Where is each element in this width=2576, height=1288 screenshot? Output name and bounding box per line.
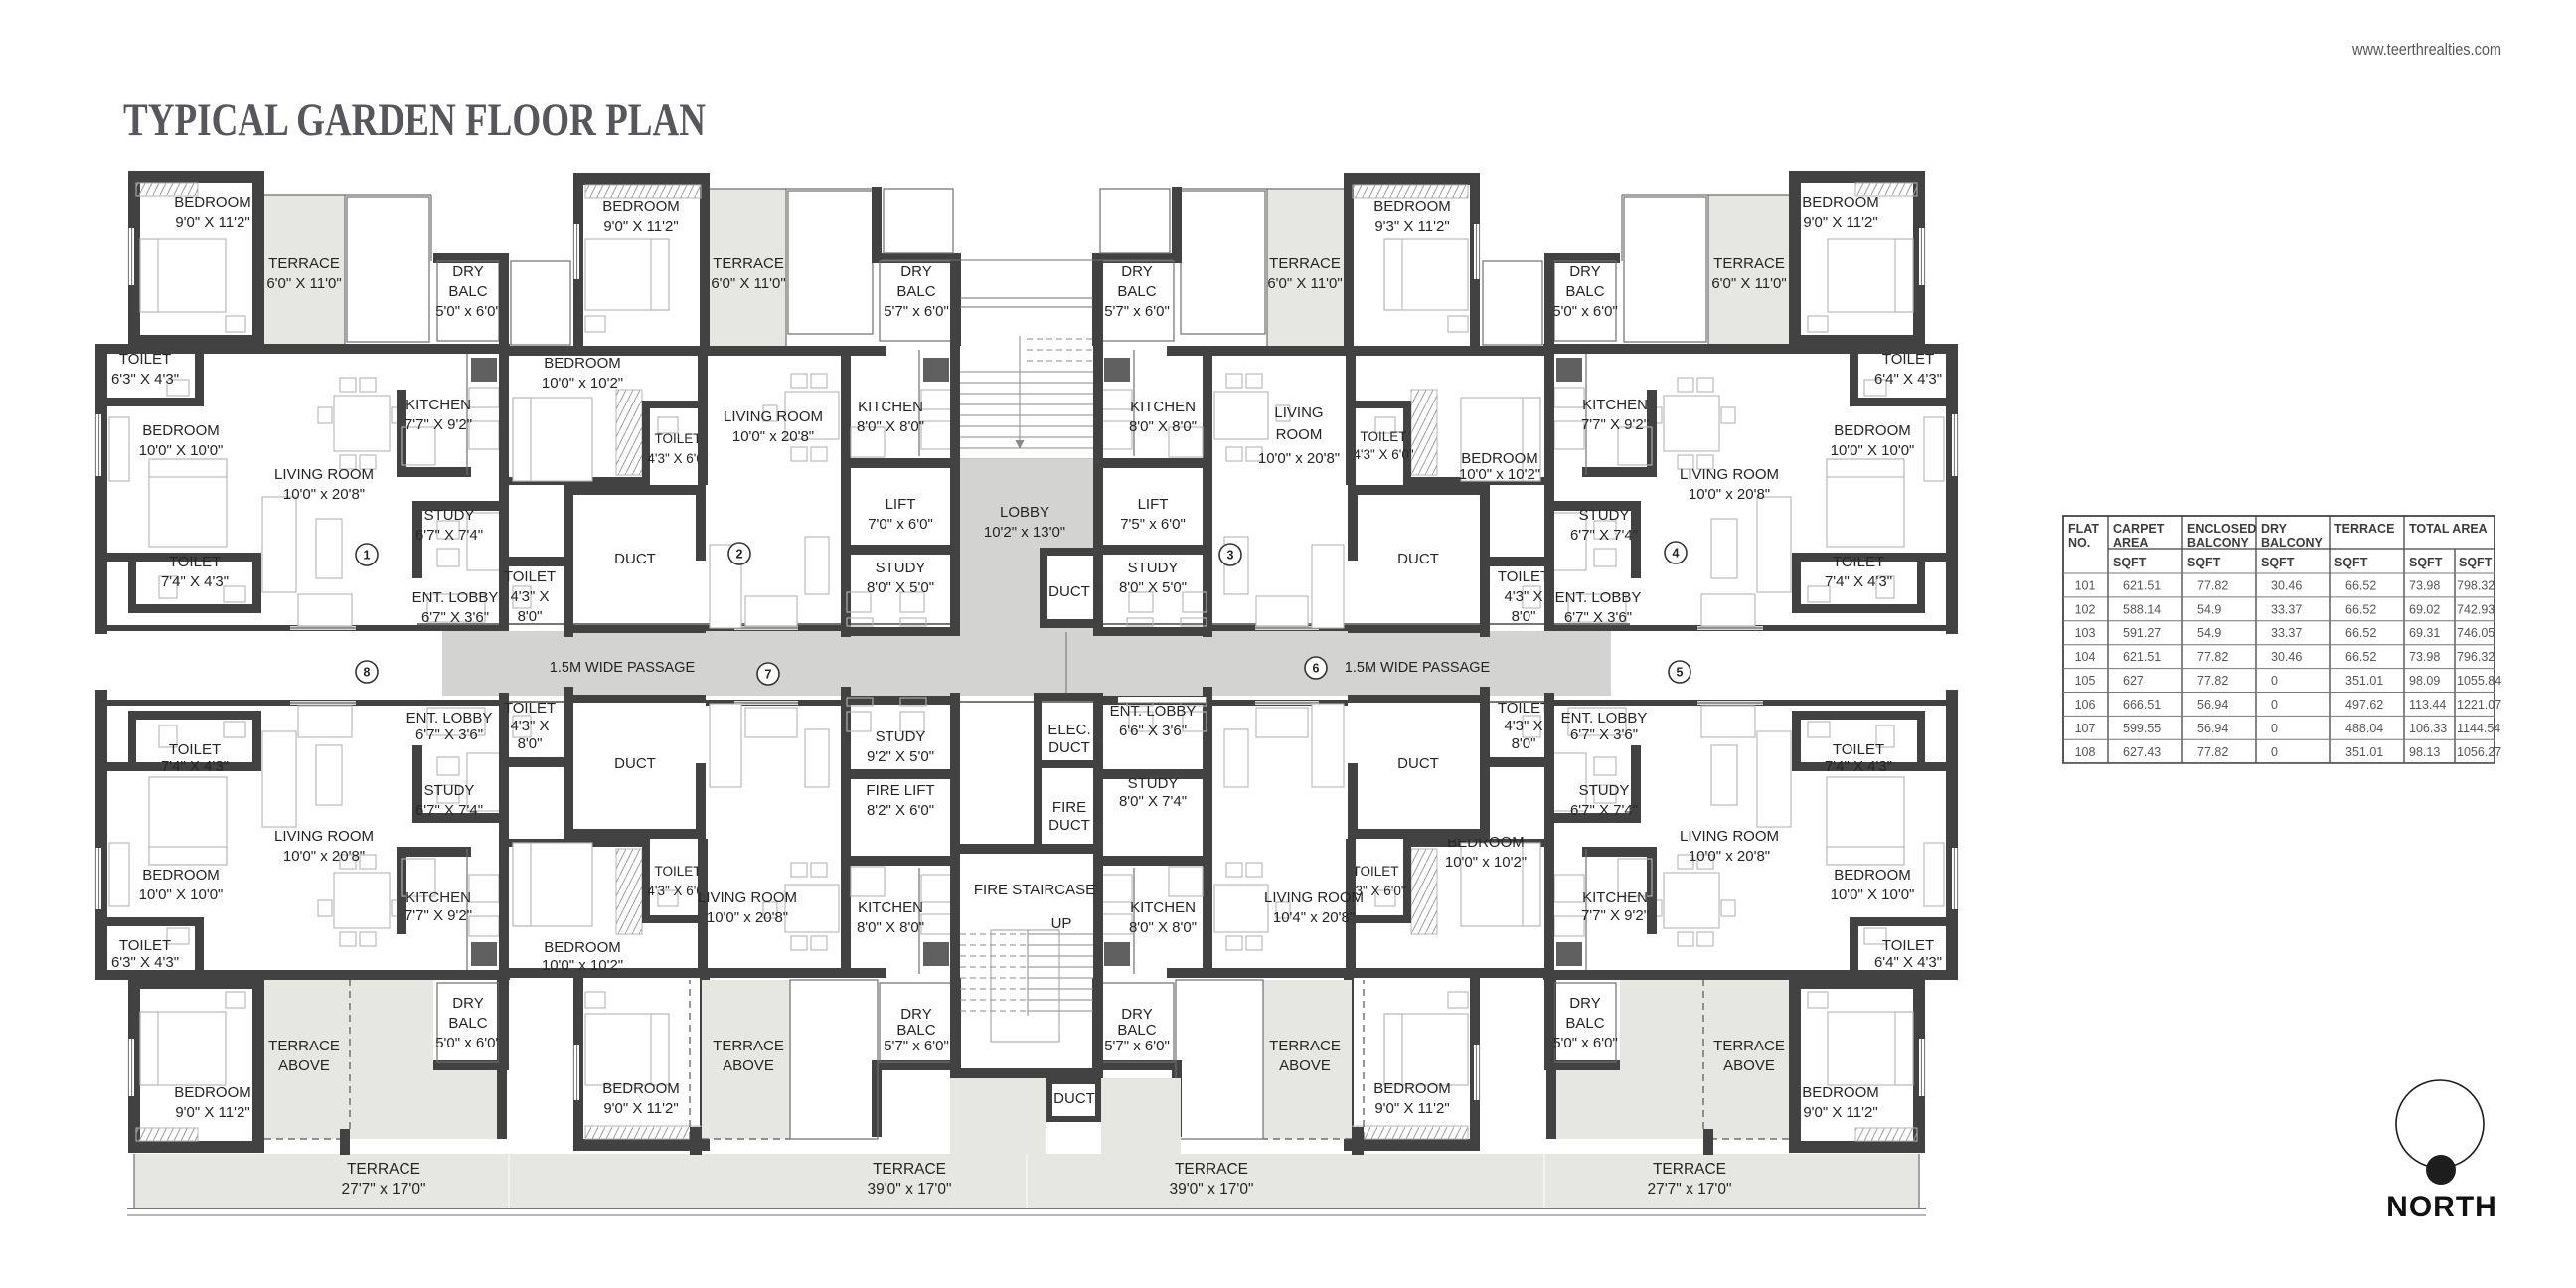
svg-text:FIRE STAIRCASE: FIRE STAIRCASE xyxy=(974,882,1095,898)
svg-text:591.27: 591.27 xyxy=(2123,626,2161,640)
svg-text:TOILET: TOILET xyxy=(169,554,221,570)
svg-text:6'4" X 4'3": 6'4" X 4'3" xyxy=(1874,954,1942,971)
svg-text:BALC: BALC xyxy=(448,1015,487,1032)
svg-text:NO.: NO. xyxy=(2068,536,2090,550)
svg-text:TOILET: TOILET xyxy=(654,431,701,446)
svg-text:796.32: 796.32 xyxy=(2457,650,2495,664)
svg-text:746.05: 746.05 xyxy=(2457,626,2495,640)
svg-text:KITCHEN: KITCHEN xyxy=(1130,399,1196,415)
svg-text:TOILET: TOILET xyxy=(1498,700,1549,717)
svg-text:TERRACE: TERRACE xyxy=(713,255,784,272)
svg-text:DRY: DRY xyxy=(900,263,931,280)
svg-text:10'0" X 10'0": 10'0" X 10'0" xyxy=(1831,886,1915,903)
svg-text:STUDY: STUDY xyxy=(424,782,475,799)
svg-text:TOILET: TOILET xyxy=(169,741,221,758)
svg-text:BEDROOM: BEDROOM xyxy=(142,422,220,439)
svg-text:4'3" X: 4'3" X xyxy=(1504,718,1542,734)
svg-text:AREA: AREA xyxy=(2113,536,2148,550)
svg-text:102: 102 xyxy=(2075,602,2096,616)
svg-text:621.51: 621.51 xyxy=(2123,650,2161,664)
svg-text:8'2" X 6'0": 8'2" X 6'0" xyxy=(867,802,934,819)
svg-text:BALC: BALC xyxy=(1565,283,1604,300)
svg-text:627: 627 xyxy=(2123,674,2144,688)
svg-text:7'4" X 4'3": 7'4" X 4'3" xyxy=(1825,758,1892,775)
svg-text:101: 101 xyxy=(2075,579,2096,593)
svg-text:BEDROOM: BEDROOM xyxy=(544,939,621,956)
svg-text:BEDROOM: BEDROOM xyxy=(602,1080,680,1097)
svg-text:33.37: 33.37 xyxy=(2271,626,2302,640)
svg-text:10'0" x 20'8": 10'0" x 20'8" xyxy=(1689,486,1770,503)
svg-text:4'3" X: 4'3" X xyxy=(1504,588,1542,605)
svg-text:KITCHEN: KITCHEN xyxy=(1582,889,1648,906)
svg-text:6'3" X 4'3": 6'3" X 4'3" xyxy=(111,371,179,388)
svg-text:54.9: 54.9 xyxy=(2197,626,2221,640)
svg-text:KITCHEN: KITCHEN xyxy=(1582,397,1648,413)
svg-text:ENT. LOBBY: ENT. LOBBY xyxy=(1110,703,1197,720)
svg-text:LIVING ROOM: LIVING ROOM xyxy=(1680,466,1779,483)
svg-text:STUDY: STUDY xyxy=(1579,782,1630,799)
svg-text:9'3" X 11'2": 9'3" X 11'2" xyxy=(1374,218,1449,235)
svg-text:10'0" x 10'2": 10'0" x 10'2" xyxy=(1445,854,1527,871)
svg-text:6'3" X 4'3": 6'3" X 4'3" xyxy=(111,954,179,971)
svg-text:10'0" X 10'0": 10'0" X 10'0" xyxy=(1831,442,1915,459)
svg-text:STUDY: STUDY xyxy=(424,507,475,524)
svg-text:TERRACE: TERRACE xyxy=(268,255,340,272)
svg-text:SQFT: SQFT xyxy=(2187,556,2221,569)
svg-text:56.94: 56.94 xyxy=(2197,698,2228,712)
svg-text:8'0" X 8'0": 8'0" X 8'0" xyxy=(1129,418,1197,435)
svg-text:8'0" X 8'0": 8'0" X 8'0" xyxy=(857,919,924,936)
svg-text:DRY: DRY xyxy=(2261,522,2288,536)
svg-text:8'0" X 8'0": 8'0" X 8'0" xyxy=(1129,919,1197,936)
svg-text:TERRACE: TERRACE xyxy=(1713,1038,1785,1054)
svg-text:ROOM: ROOM xyxy=(1276,426,1323,443)
svg-text:7'5" x 6'0": 7'5" x 6'0" xyxy=(1120,516,1186,533)
svg-text:5'0" x 6'0": 5'0" x 6'0" xyxy=(1552,1035,1618,1051)
svg-text:6'7" X 7'4": 6'7" X 7'4" xyxy=(1570,527,1638,544)
svg-text:10'2" x 13'0": 10'2" x 13'0" xyxy=(984,524,1065,541)
svg-text:BEDROOM: BEDROOM xyxy=(174,194,251,211)
svg-text:TOILET: TOILET xyxy=(1833,554,1884,570)
svg-text:LIVING ROOM: LIVING ROOM xyxy=(1680,828,1779,845)
svg-text:798.32: 798.32 xyxy=(2457,579,2495,593)
svg-text:7: 7 xyxy=(765,668,772,682)
svg-text:BEDROOM: BEDROOM xyxy=(1373,1080,1451,1097)
svg-text:1.5M WIDE PASSAGE: 1.5M WIDE PASSAGE xyxy=(1345,660,1491,676)
svg-text:TERRACE: TERRACE xyxy=(1175,1161,1248,1178)
svg-text:BALC: BALC xyxy=(1117,1022,1156,1039)
svg-text:9'0" X 11'2": 9'0" X 11'2" xyxy=(603,218,678,235)
svg-text:6'7" X 7'4": 6'7" X 7'4" xyxy=(415,527,483,544)
svg-text:TERRACE: TERRACE xyxy=(1653,1161,1726,1178)
svg-text:ABOVE: ABOVE xyxy=(723,1057,774,1074)
svg-text:SQFT: SQFT xyxy=(2261,556,2295,569)
svg-text:73.98: 73.98 xyxy=(2409,579,2440,593)
svg-text:ENCLOSED: ENCLOSED xyxy=(2187,522,2256,536)
svg-text:5'7" x 6'0": 5'7" x 6'0" xyxy=(884,303,949,320)
svg-text:9'0" X 11'2": 9'0" X 11'2" xyxy=(603,1100,678,1117)
svg-text:10'0" x 20'8": 10'0" x 20'8" xyxy=(1258,450,1340,467)
svg-text:LIVING ROOM: LIVING ROOM xyxy=(274,828,374,845)
svg-text:27'7" x 17'0": 27'7" x 17'0" xyxy=(1647,1181,1731,1198)
svg-text:0: 0 xyxy=(2271,722,2278,735)
svg-text:39'0" x 17'0": 39'0" x 17'0" xyxy=(867,1181,951,1198)
svg-text:497.62: 497.62 xyxy=(2345,698,2383,712)
svg-text:3: 3 xyxy=(1227,549,1234,563)
svg-text:UP: UP xyxy=(1051,915,1072,932)
svg-text:BALC: BALC xyxy=(1117,283,1156,300)
svg-text:TERRACE: TERRACE xyxy=(268,1038,340,1054)
svg-text:106: 106 xyxy=(2075,698,2096,712)
svg-text:488.04: 488.04 xyxy=(2345,722,2383,735)
svg-text:BEDROOM: BEDROOM xyxy=(1834,867,1911,884)
svg-text:TERRACE: TERRACE xyxy=(347,1161,420,1178)
svg-text:6'7" X 3'6": 6'7" X 3'6" xyxy=(415,726,483,743)
svg-text:8'0": 8'0" xyxy=(1512,735,1536,752)
svg-text:9'0" X 11'2": 9'0" X 11'2" xyxy=(175,214,249,231)
svg-text:113.44: 113.44 xyxy=(2409,698,2446,712)
svg-text:4'3" X 6'0": 4'3" X 6'0" xyxy=(1353,447,1413,462)
svg-text:KITCHEN: KITCHEN xyxy=(405,889,471,906)
svg-text:BEDROOM: BEDROOM xyxy=(142,867,220,884)
svg-text:KITCHEN: KITCHEN xyxy=(1130,899,1196,916)
svg-text:SQFT: SQFT xyxy=(2459,556,2493,569)
svg-text:LIVING ROOM: LIVING ROOM xyxy=(1264,889,1364,906)
svg-text:www.teerthrealties.com: www.teerthrealties.com xyxy=(2351,41,2501,59)
svg-text:0: 0 xyxy=(2271,745,2278,759)
svg-text:66.52: 66.52 xyxy=(2345,579,2376,593)
svg-text:66.52: 66.52 xyxy=(2345,602,2376,616)
svg-text:10'0" x 10'2": 10'0" x 10'2" xyxy=(542,957,623,974)
svg-text:LIVING ROOM: LIVING ROOM xyxy=(698,889,797,906)
svg-text:TOILET: TOILET xyxy=(1882,351,1934,368)
svg-text:9'0" X 11'2": 9'0" X 11'2" xyxy=(1803,1104,1877,1121)
svg-text:7'7" X 9'2": 7'7" X 9'2" xyxy=(1581,907,1649,924)
svg-text:27'7" x 17'0": 27'7" x 17'0" xyxy=(341,1181,425,1198)
svg-text:742.93: 742.93 xyxy=(2457,602,2495,616)
svg-text:77.82: 77.82 xyxy=(2197,674,2228,688)
svg-text:5'7" x 6'0": 5'7" x 6'0" xyxy=(1104,303,1170,320)
svg-text:TERRACE: TERRACE xyxy=(1269,255,1341,272)
svg-text:666.51: 666.51 xyxy=(2123,698,2161,712)
svg-text:77.82: 77.82 xyxy=(2197,745,2228,759)
svg-text:56.94: 56.94 xyxy=(2197,722,2228,735)
svg-text:DUCT: DUCT xyxy=(614,551,656,567)
svg-text:LIFT: LIFT xyxy=(885,496,916,513)
svg-text:ABOVE: ABOVE xyxy=(1279,1057,1331,1074)
svg-text:5'0" x 6'0": 5'0" x 6'0" xyxy=(1552,303,1618,320)
svg-text:TOILET: TOILET xyxy=(504,700,556,717)
svg-text:TOTAL AREA: TOTAL AREA xyxy=(2409,522,2488,536)
svg-text:69.02: 69.02 xyxy=(2409,602,2440,616)
svg-text:6'4" X 4'3": 6'4" X 4'3" xyxy=(1874,371,1942,388)
svg-text:BEDROOM: BEDROOM xyxy=(1461,450,1538,467)
svg-text:98.09: 98.09 xyxy=(2409,674,2440,688)
svg-text:39'0" x 17'0": 39'0" x 17'0" xyxy=(1169,1181,1253,1198)
svg-text:33.37: 33.37 xyxy=(2271,602,2302,616)
svg-text:KITCHEN: KITCHEN xyxy=(858,899,923,916)
svg-text:STUDY: STUDY xyxy=(1128,775,1179,792)
svg-text:ENT. LOBBY: ENT. LOBBY xyxy=(1555,589,1642,606)
svg-text:1.5M WIDE PASSAGE: 1.5M WIDE PASSAGE xyxy=(550,660,696,676)
svg-text:BALC: BALC xyxy=(896,283,935,300)
svg-text:6'6" X 3'6": 6'6" X 3'6" xyxy=(1119,723,1187,739)
svg-text:351.01: 351.01 xyxy=(2345,745,2383,759)
svg-text:6'7" X 7'4": 6'7" X 7'4" xyxy=(415,802,483,819)
svg-text:0: 0 xyxy=(2271,674,2278,688)
svg-text:BALCONY: BALCONY xyxy=(2261,536,2323,550)
svg-text:DRY: DRY xyxy=(452,995,483,1012)
svg-text:5'7" x 6'0": 5'7" x 6'0" xyxy=(1104,1038,1170,1054)
svg-text:DUCT: DUCT xyxy=(614,755,656,772)
svg-text:77.82: 77.82 xyxy=(2197,579,2228,593)
svg-text:DRY: DRY xyxy=(900,1006,931,1023)
svg-text:4: 4 xyxy=(1673,547,1680,561)
svg-text:7'0" x 6'0": 7'0" x 6'0" xyxy=(868,516,933,533)
svg-text:1056.27: 1056.27 xyxy=(2457,745,2501,759)
svg-text:8'0": 8'0" xyxy=(518,608,543,625)
svg-text:BEDROOM: BEDROOM xyxy=(602,198,680,215)
svg-text:TOILET: TOILET xyxy=(1352,864,1398,879)
svg-text:LIFT: LIFT xyxy=(1138,496,1169,513)
svg-text:10'0" x 20'8": 10'0" x 20'8" xyxy=(283,486,365,503)
svg-text:7'7" X 9'2": 7'7" X 9'2" xyxy=(404,907,472,924)
svg-text:TOILET: TOILET xyxy=(1882,937,1934,954)
svg-text:627.43: 627.43 xyxy=(2123,745,2161,759)
svg-text:77.82: 77.82 xyxy=(2197,650,2228,664)
svg-text:BEDROOM: BEDROOM xyxy=(544,355,621,372)
svg-text:6'7" X 3'6": 6'7" X 3'6" xyxy=(421,609,489,626)
svg-text:10'0" x 20'8": 10'0" x 20'8" xyxy=(707,909,788,926)
svg-text:DRY: DRY xyxy=(1121,1006,1152,1023)
svg-text:4'3" X: 4'3" X xyxy=(510,718,549,734)
svg-text:SQFT: SQFT xyxy=(2409,556,2443,569)
svg-text:105: 105 xyxy=(2075,674,2096,688)
svg-text:6'0" X 11'0": 6'0" X 11'0" xyxy=(711,275,785,292)
svg-text:8'0" X 5'0": 8'0" X 5'0" xyxy=(867,579,934,596)
svg-text:10'0" X 10'0": 10'0" X 10'0" xyxy=(139,886,224,903)
svg-text:5'0" x 6'0": 5'0" x 6'0" xyxy=(435,1035,501,1051)
svg-text:2: 2 xyxy=(736,548,743,562)
svg-text:TOILET: TOILET xyxy=(119,351,171,368)
svg-text:ELEC.: ELEC. xyxy=(1047,722,1090,738)
svg-text:588.14: 588.14 xyxy=(2123,602,2161,616)
svg-text:DUCT: DUCT xyxy=(1053,1090,1095,1107)
svg-text:TOILET: TOILET xyxy=(119,937,171,954)
svg-text:ABOVE: ABOVE xyxy=(278,1057,330,1074)
svg-text:54.9: 54.9 xyxy=(2197,602,2221,616)
svg-text:621.51: 621.51 xyxy=(2123,579,2161,593)
svg-text:8'0" X 7'4": 8'0" X 7'4" xyxy=(1119,793,1187,810)
svg-text:9'0" X 11'2": 9'0" X 11'2" xyxy=(1374,1100,1449,1117)
svg-text:STUDY: STUDY xyxy=(876,728,926,745)
svg-text:8'0": 8'0" xyxy=(518,735,543,752)
svg-text:DRY: DRY xyxy=(452,263,483,280)
svg-text:DUCT: DUCT xyxy=(1397,551,1439,567)
svg-text:9'0" X 11'2": 9'0" X 11'2" xyxy=(175,1104,249,1121)
svg-text:6'0" X 11'0": 6'0" X 11'0" xyxy=(266,275,341,292)
svg-text:9'0" X 11'2": 9'0" X 11'2" xyxy=(1803,214,1877,231)
svg-text:TOILET: TOILET xyxy=(1833,741,1884,758)
svg-text:FLAT: FLAT xyxy=(2068,522,2099,536)
svg-text:5'7" x 6'0": 5'7" x 6'0" xyxy=(884,1038,949,1054)
svg-text:7'4" X 4'3": 7'4" X 4'3" xyxy=(161,573,229,590)
svg-text:104: 104 xyxy=(2075,650,2096,664)
svg-text:8: 8 xyxy=(364,666,371,680)
svg-text:DRY: DRY xyxy=(1121,263,1152,280)
svg-text:DUCT: DUCT xyxy=(1048,739,1090,756)
svg-text:10'0" x 10'2": 10'0" x 10'2" xyxy=(542,375,623,392)
svg-text:98.13: 98.13 xyxy=(2409,745,2440,759)
svg-text:66.52: 66.52 xyxy=(2345,650,2376,664)
svg-text:30.46: 30.46 xyxy=(2271,650,2302,664)
svg-text:6'7" X 7'4": 6'7" X 7'4" xyxy=(1570,802,1638,819)
svg-text:5: 5 xyxy=(1677,666,1684,680)
svg-text:TERRACE: TERRACE xyxy=(1269,1038,1341,1054)
svg-text:30.46: 30.46 xyxy=(2271,579,2302,593)
svg-text:599.55: 599.55 xyxy=(2123,722,2161,735)
svg-text:6'7" X 3'6": 6'7" X 3'6" xyxy=(1564,609,1632,626)
svg-text:DUCT: DUCT xyxy=(1048,583,1090,600)
svg-text:STUDY: STUDY xyxy=(1579,507,1630,524)
svg-text:7'7" X 9'2": 7'7" X 9'2" xyxy=(1581,416,1649,433)
svg-text:66.52: 66.52 xyxy=(2345,626,2376,640)
svg-text:8'0" X 5'0": 8'0" X 5'0" xyxy=(1119,579,1187,596)
svg-text:LOBBY: LOBBY xyxy=(1000,504,1049,521)
svg-text:FIRE: FIRE xyxy=(1052,799,1086,816)
svg-text:STUDY: STUDY xyxy=(1128,560,1179,576)
svg-text:1221.07: 1221.07 xyxy=(2457,698,2501,712)
svg-text:73.98: 73.98 xyxy=(2409,650,2440,664)
svg-text:69.31: 69.31 xyxy=(2409,626,2440,640)
svg-text:STUDY: STUDY xyxy=(876,560,926,576)
svg-text:DRY: DRY xyxy=(1569,995,1600,1012)
svg-text:TERRACE: TERRACE xyxy=(873,1161,946,1178)
svg-text:DUCT: DUCT xyxy=(1397,755,1439,772)
svg-text:0: 0 xyxy=(2271,698,2278,712)
svg-text:SQFT: SQFT xyxy=(2113,556,2147,569)
svg-text:NORTH: NORTH xyxy=(2386,1191,2497,1223)
svg-text:BALCONY: BALCONY xyxy=(2187,536,2249,550)
svg-text:8'0" X 8'0": 8'0" X 8'0" xyxy=(857,418,924,435)
svg-text:10'4" x 20'8": 10'4" x 20'8" xyxy=(1273,909,1355,926)
svg-text:SQFT: SQFT xyxy=(2334,556,2368,569)
svg-text:6'7" X 3'6": 6'7" X 3'6" xyxy=(1570,726,1638,743)
svg-text:TYPICAL GARDEN FLOOR PLAN: TYPICAL GARDEN FLOOR PLAN xyxy=(123,94,706,146)
svg-text:1: 1 xyxy=(364,549,371,563)
svg-text:6'0" X 11'0": 6'0" X 11'0" xyxy=(1711,275,1786,292)
svg-text:LIVING ROOM: LIVING ROOM xyxy=(274,466,374,483)
svg-text:6'0" X 11'0": 6'0" X 11'0" xyxy=(1267,275,1342,292)
svg-text:351.01: 351.01 xyxy=(2345,674,2383,688)
svg-text:106.33: 106.33 xyxy=(2409,722,2447,735)
svg-text:107: 107 xyxy=(2075,722,2096,735)
svg-text:DRY: DRY xyxy=(1569,263,1600,280)
svg-text:ABOVE: ABOVE xyxy=(1723,1057,1775,1074)
svg-text:KITCHEN: KITCHEN xyxy=(405,397,471,413)
svg-text:1144.54: 1144.54 xyxy=(2457,722,2500,735)
svg-text:BEDROOM: BEDROOM xyxy=(1802,1084,1879,1101)
svg-text:6: 6 xyxy=(1313,662,1320,676)
svg-text:BEDROOM: BEDROOM xyxy=(1802,194,1879,211)
svg-text:7'7" X 9'2": 7'7" X 9'2" xyxy=(404,416,472,433)
svg-text:TOILET: TOILET xyxy=(504,568,556,585)
svg-text:7'4" X 4'3": 7'4" X 4'3" xyxy=(1825,573,1892,590)
svg-text:DUCT: DUCT xyxy=(1048,817,1090,834)
svg-text:TERRACE: TERRACE xyxy=(2334,522,2394,536)
svg-text:BEDROOM: BEDROOM xyxy=(1834,422,1911,439)
svg-text:TOILET: TOILET xyxy=(654,864,701,879)
svg-text:ENT. LOBBY: ENT. LOBBY xyxy=(406,710,493,726)
svg-text:TERRACE: TERRACE xyxy=(1713,255,1785,272)
svg-text:5'0" x 6'0": 5'0" x 6'0" xyxy=(435,303,501,320)
svg-text:ENT. LOBBY: ENT. LOBBY xyxy=(1561,710,1648,726)
svg-text:TERRACE: TERRACE xyxy=(713,1038,784,1054)
svg-text:LIVING ROOM: LIVING ROOM xyxy=(724,408,823,425)
svg-text:BALC: BALC xyxy=(1565,1015,1604,1032)
svg-text:BALC: BALC xyxy=(448,283,487,300)
svg-text:7'4" X 4'3": 7'4" X 4'3" xyxy=(161,758,229,775)
svg-text:1055.84: 1055.84 xyxy=(2457,674,2501,688)
svg-text:BEDROOM: BEDROOM xyxy=(174,1084,251,1101)
svg-text:9'2" X 5'0": 9'2" X 5'0" xyxy=(867,748,934,765)
svg-text:KITCHEN: KITCHEN xyxy=(858,399,923,415)
svg-text:CARPET: CARPET xyxy=(2113,522,2165,536)
svg-text:8'0": 8'0" xyxy=(1512,608,1536,625)
svg-text:TOILET: TOILET xyxy=(1360,429,1406,444)
svg-text:10'0" x 20'8": 10'0" x 20'8" xyxy=(283,848,365,865)
svg-text:LIVING: LIVING xyxy=(1274,404,1323,421)
svg-text:BALC: BALC xyxy=(896,1022,935,1039)
svg-text:TOILET: TOILET xyxy=(1498,568,1549,585)
svg-text:10'0" X 10'0": 10'0" X 10'0" xyxy=(139,442,224,459)
svg-text:BEDROOM: BEDROOM xyxy=(1373,198,1451,215)
svg-text:10'0" x 10'2": 10'0" x 10'2" xyxy=(1459,466,1540,483)
svg-text:FIRE LIFT: FIRE LIFT xyxy=(866,782,934,799)
svg-text:ENT. LOBBY: ENT. LOBBY xyxy=(412,589,499,606)
svg-text:103: 103 xyxy=(2075,626,2096,640)
svg-text:108: 108 xyxy=(2075,745,2096,759)
svg-text:10'0" x 20'8": 10'0" x 20'8" xyxy=(1689,848,1770,865)
svg-text:4'3" X: 4'3" X xyxy=(510,588,549,605)
svg-text:10'0" x 20'8": 10'0" x 20'8" xyxy=(732,428,814,445)
